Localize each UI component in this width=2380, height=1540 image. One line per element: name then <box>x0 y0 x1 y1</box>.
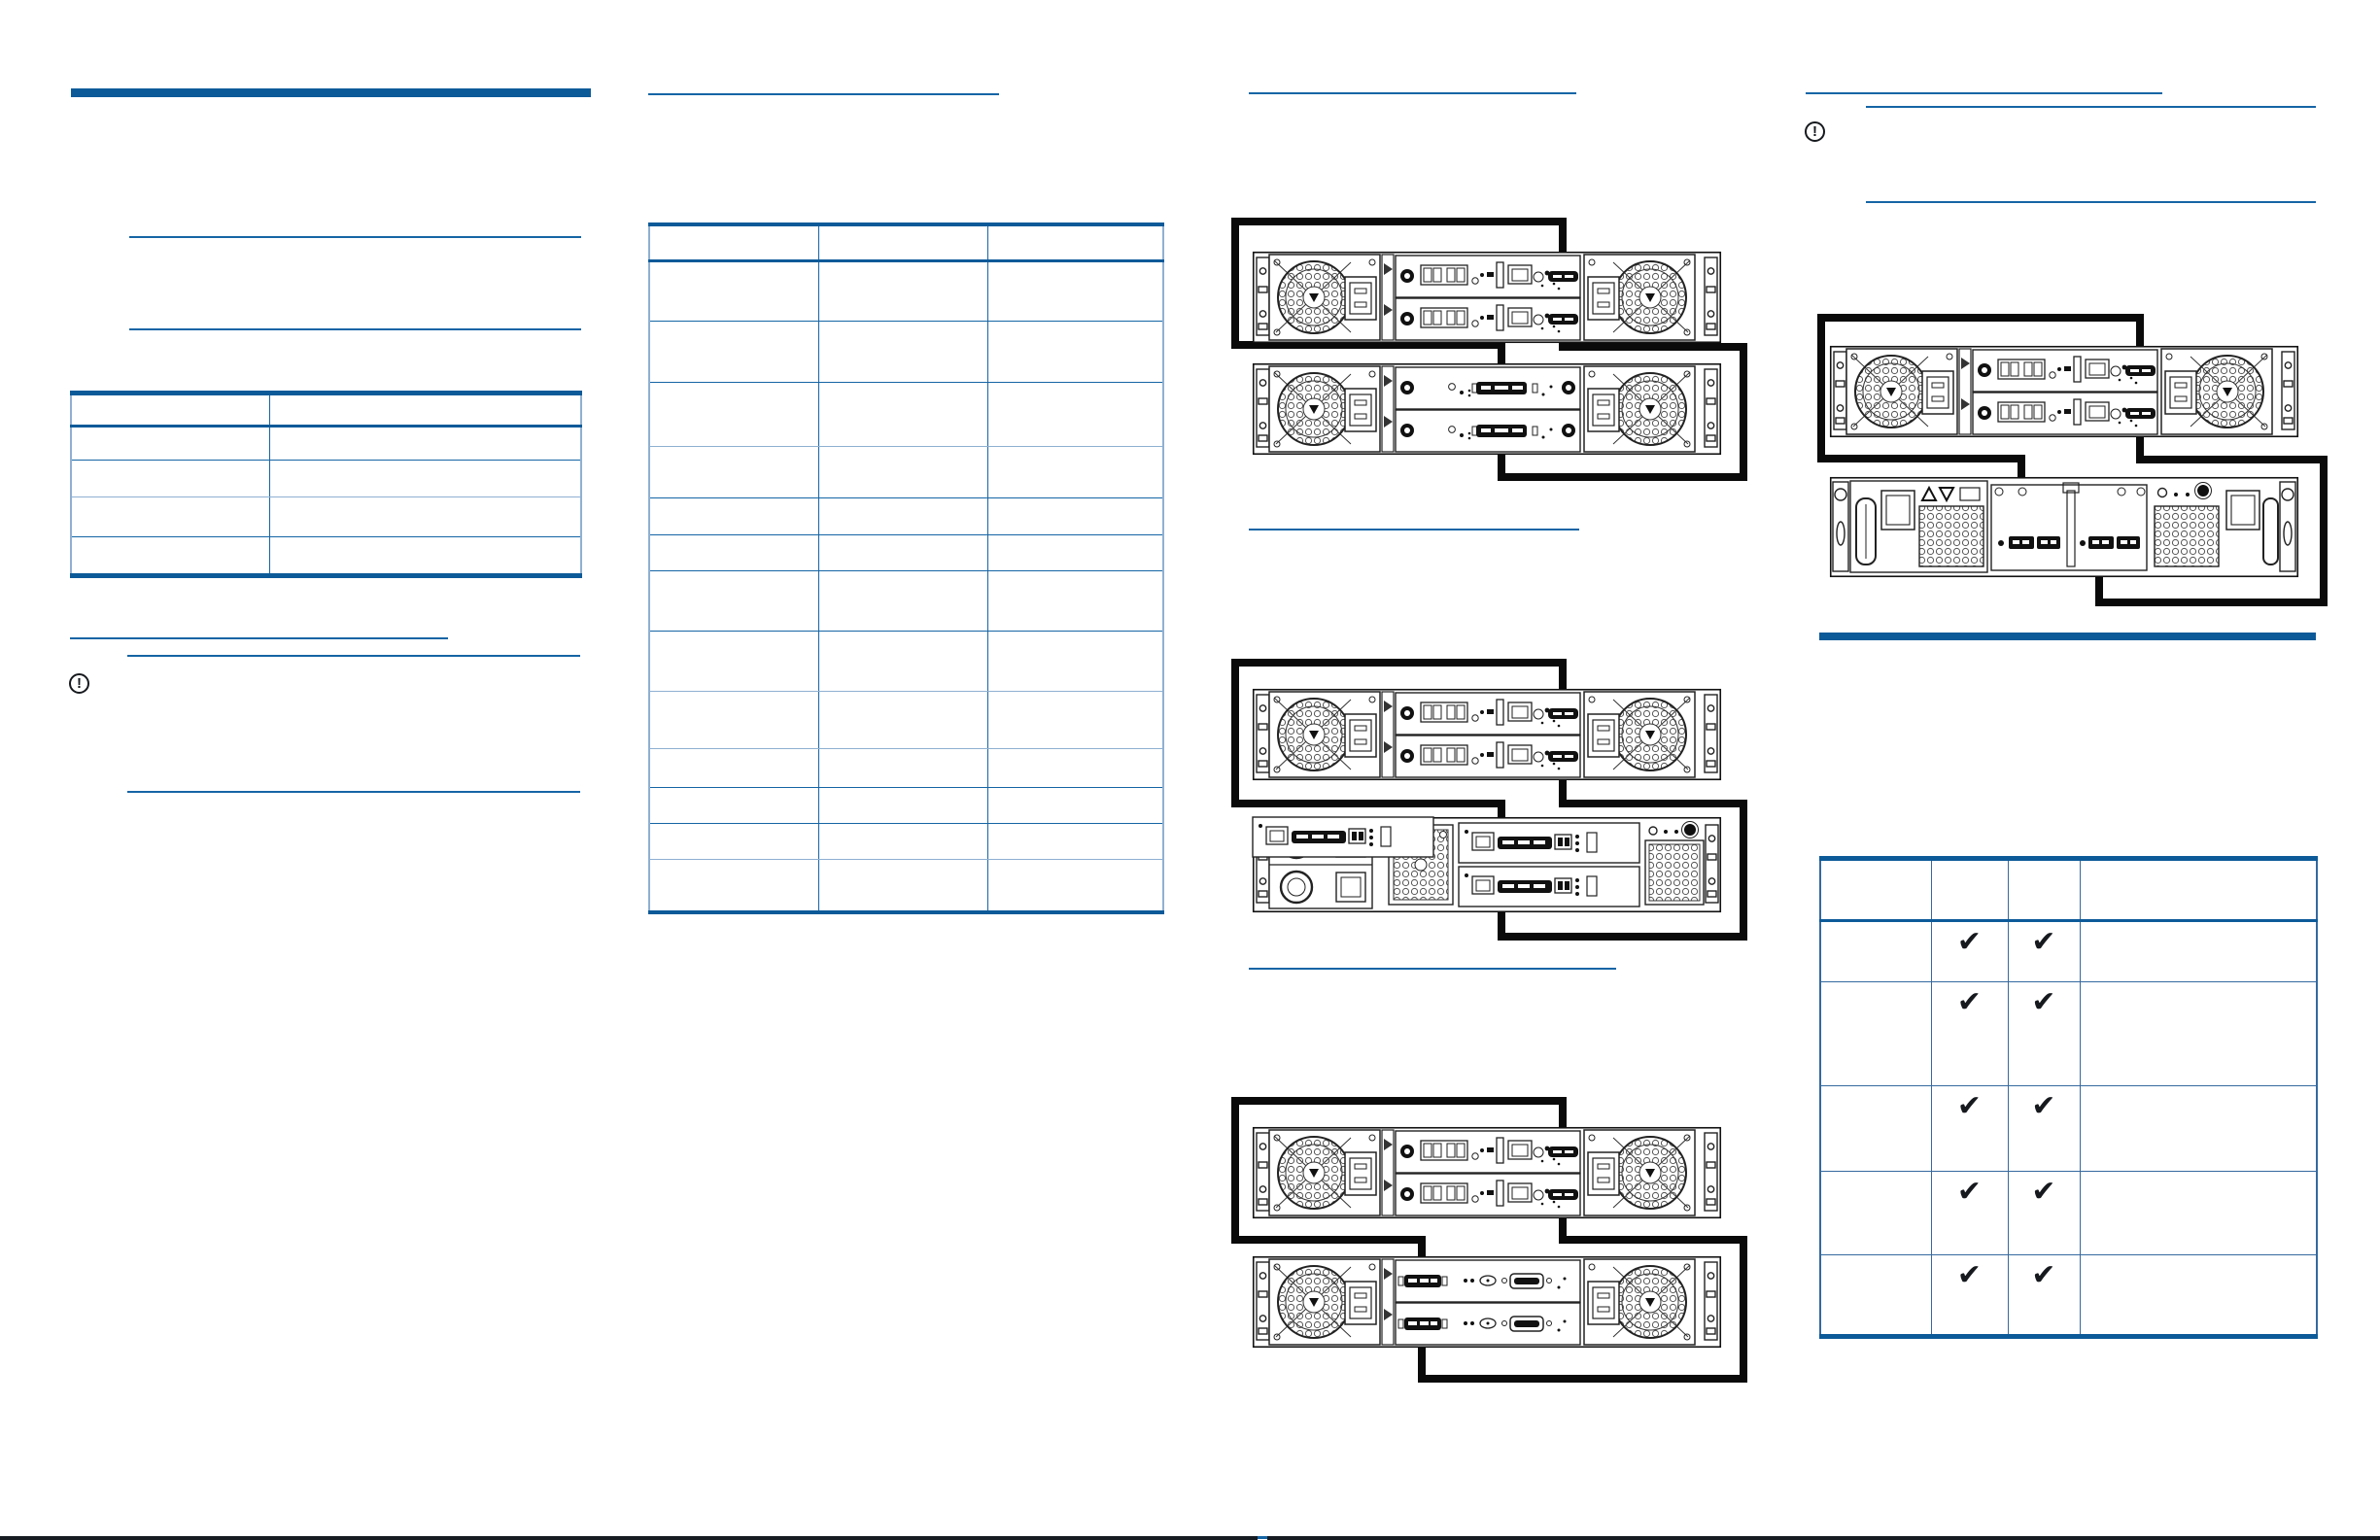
footer-rule-right <box>1267 1536 2380 1540</box>
cabling-diagram-1 <box>1235 222 1743 477</box>
drive-enclosure-lff <box>1254 364 1721 455</box>
cabling-diagram-4 <box>1821 318 2324 602</box>
diagrams-layer <box>0 0 2380 1540</box>
footer-tick <box>1258 1536 1267 1539</box>
cabling-diagram-2 <box>1235 663 1743 937</box>
document-page: ! ! ✔ ✔ ✔ ✔ <box>0 0 2380 1540</box>
cabling-diagram-3 <box>1235 1101 1743 1379</box>
controller-enclosure <box>1254 253 1721 343</box>
controller-enclosure <box>1254 1128 1721 1218</box>
drive-enclosure-dual-psu <box>1831 478 2298 577</box>
drive-enclosure-sff <box>1253 817 1720 911</box>
footer-rule-left <box>0 1536 1258 1540</box>
drive-enclosure-io-left <box>1254 1257 1721 1348</box>
controller-enclosure <box>1254 690 1721 780</box>
controller-enclosure <box>1831 347 2298 437</box>
